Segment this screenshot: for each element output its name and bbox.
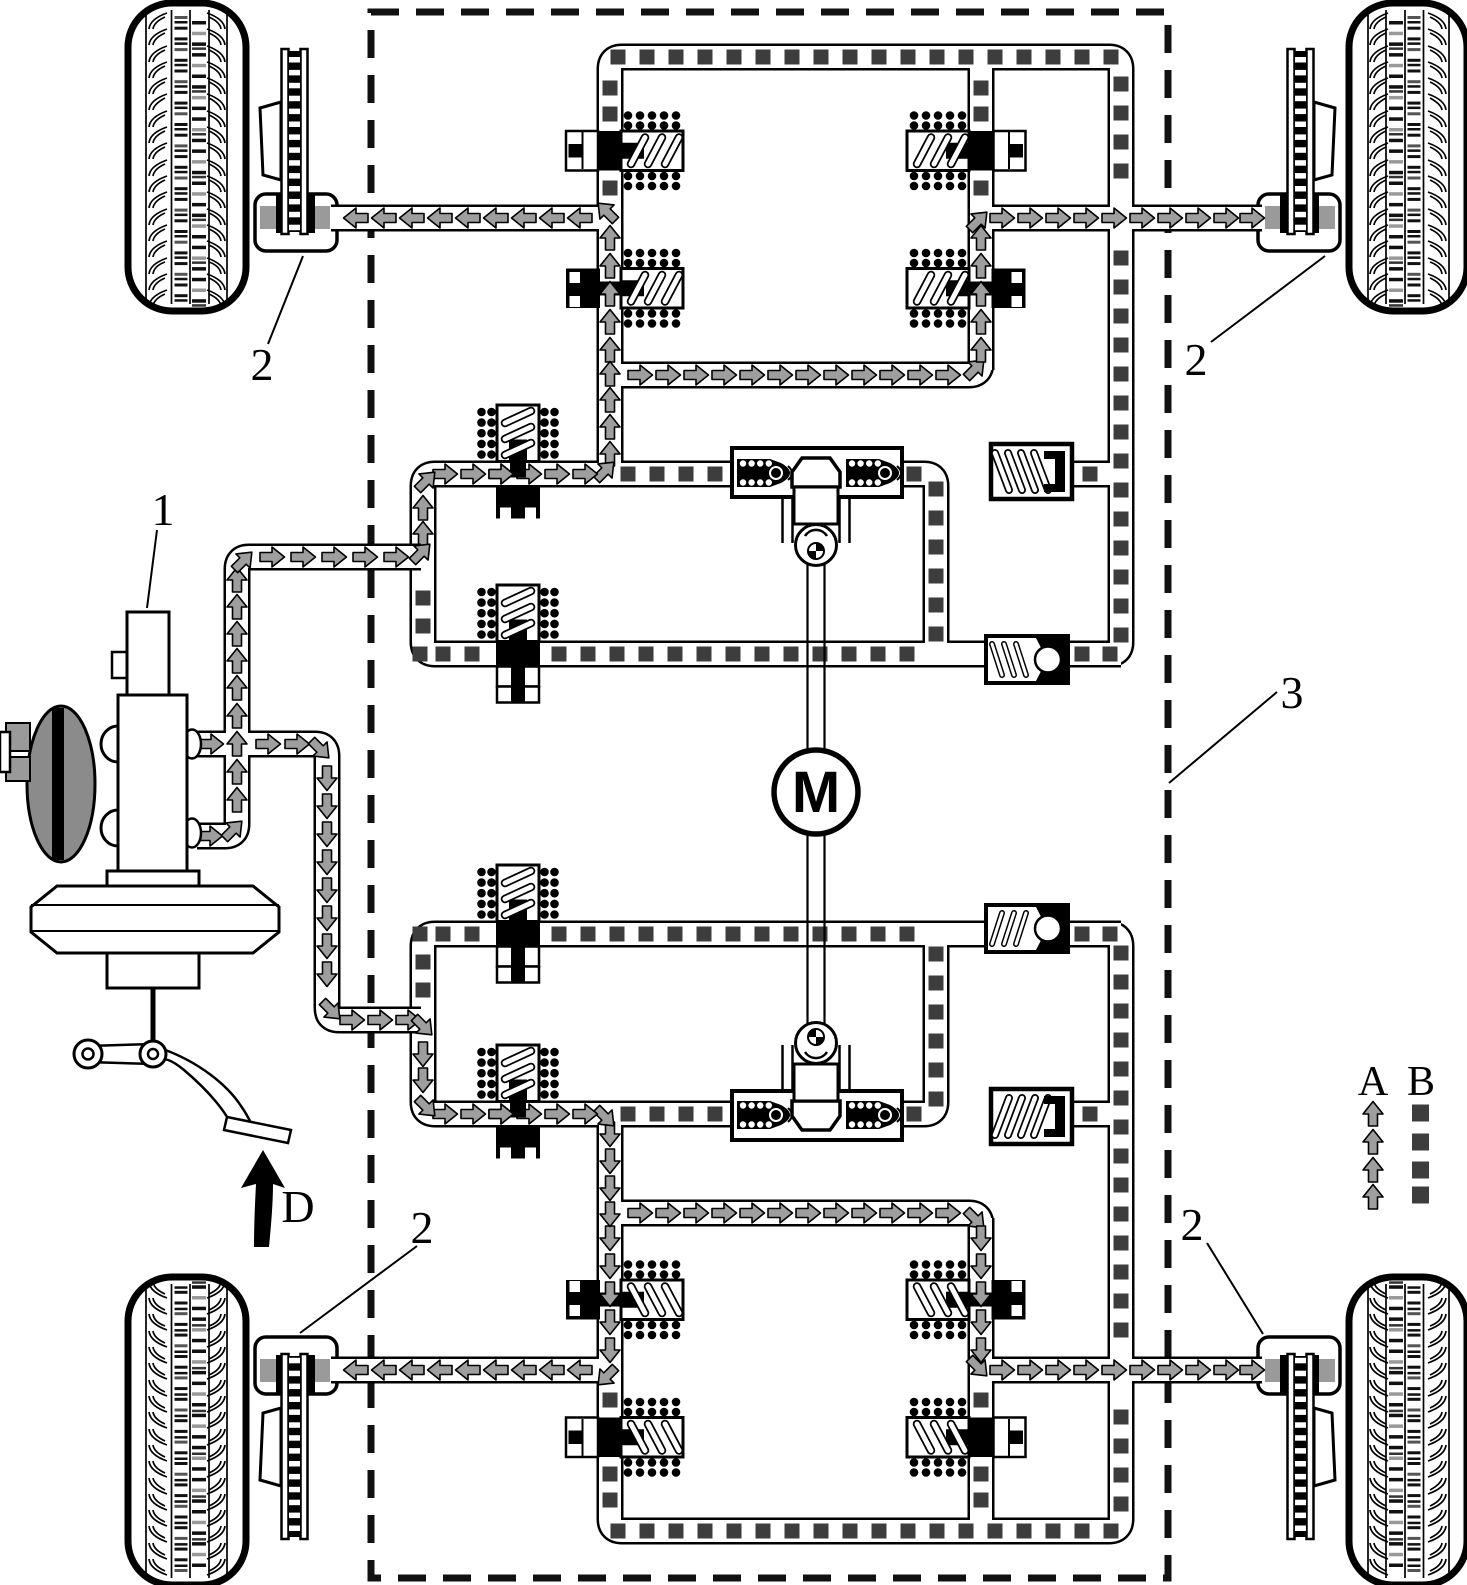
svg-text:M: M: [792, 760, 840, 825]
svg-text:2: 2: [1181, 1199, 1204, 1250]
svg-text:A: A: [1358, 1059, 1389, 1105]
svg-text:D: D: [281, 1181, 314, 1232]
svg-text:B: B: [1407, 1059, 1435, 1105]
svg-text:2: 2: [251, 339, 274, 390]
svg-text:2: 2: [1185, 334, 1208, 385]
svg-text:3: 3: [1281, 667, 1304, 718]
svg-text:1: 1: [152, 484, 175, 535]
svg-text:2: 2: [411, 1202, 434, 1253]
